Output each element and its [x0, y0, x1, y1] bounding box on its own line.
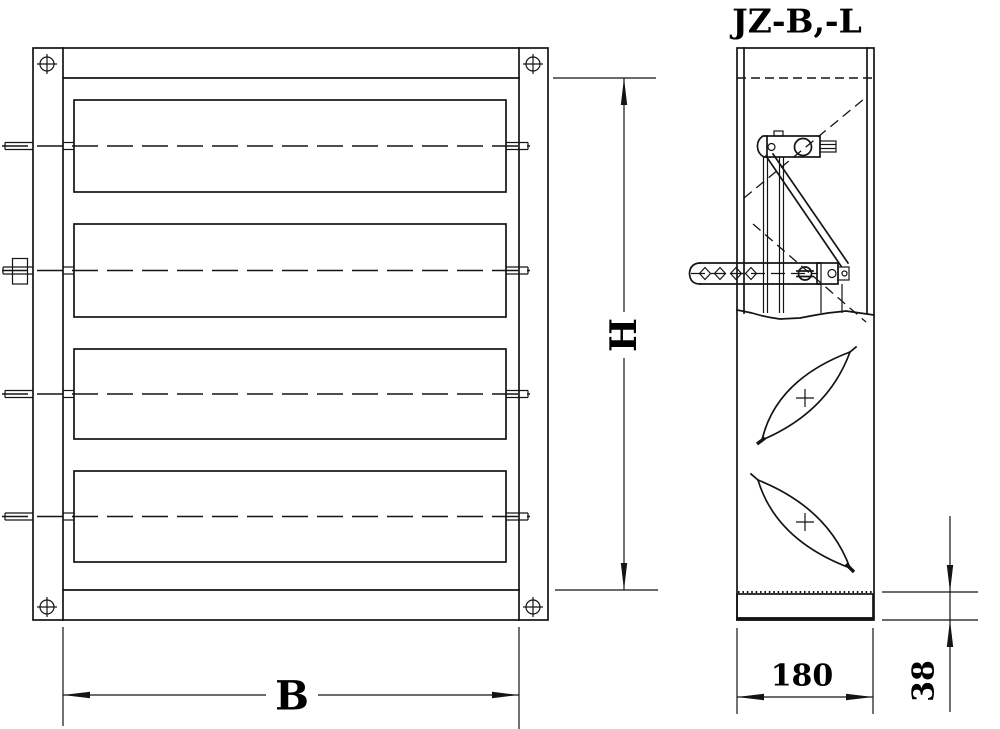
- dim-depth-label: 180: [771, 659, 834, 694]
- drawing-title: JZ-B,-L: [729, 2, 862, 41]
- drawing-canvas: H B 180 38 JZ-B,-L: [0, 0, 1000, 729]
- dim-frame-label: 38: [907, 660, 942, 702]
- dim-width-label: B: [275, 673, 309, 720]
- dim-height-label: H: [603, 318, 645, 352]
- technical-drawing: H B 180 38 JZ-B,-L: [0, 0, 1000, 729]
